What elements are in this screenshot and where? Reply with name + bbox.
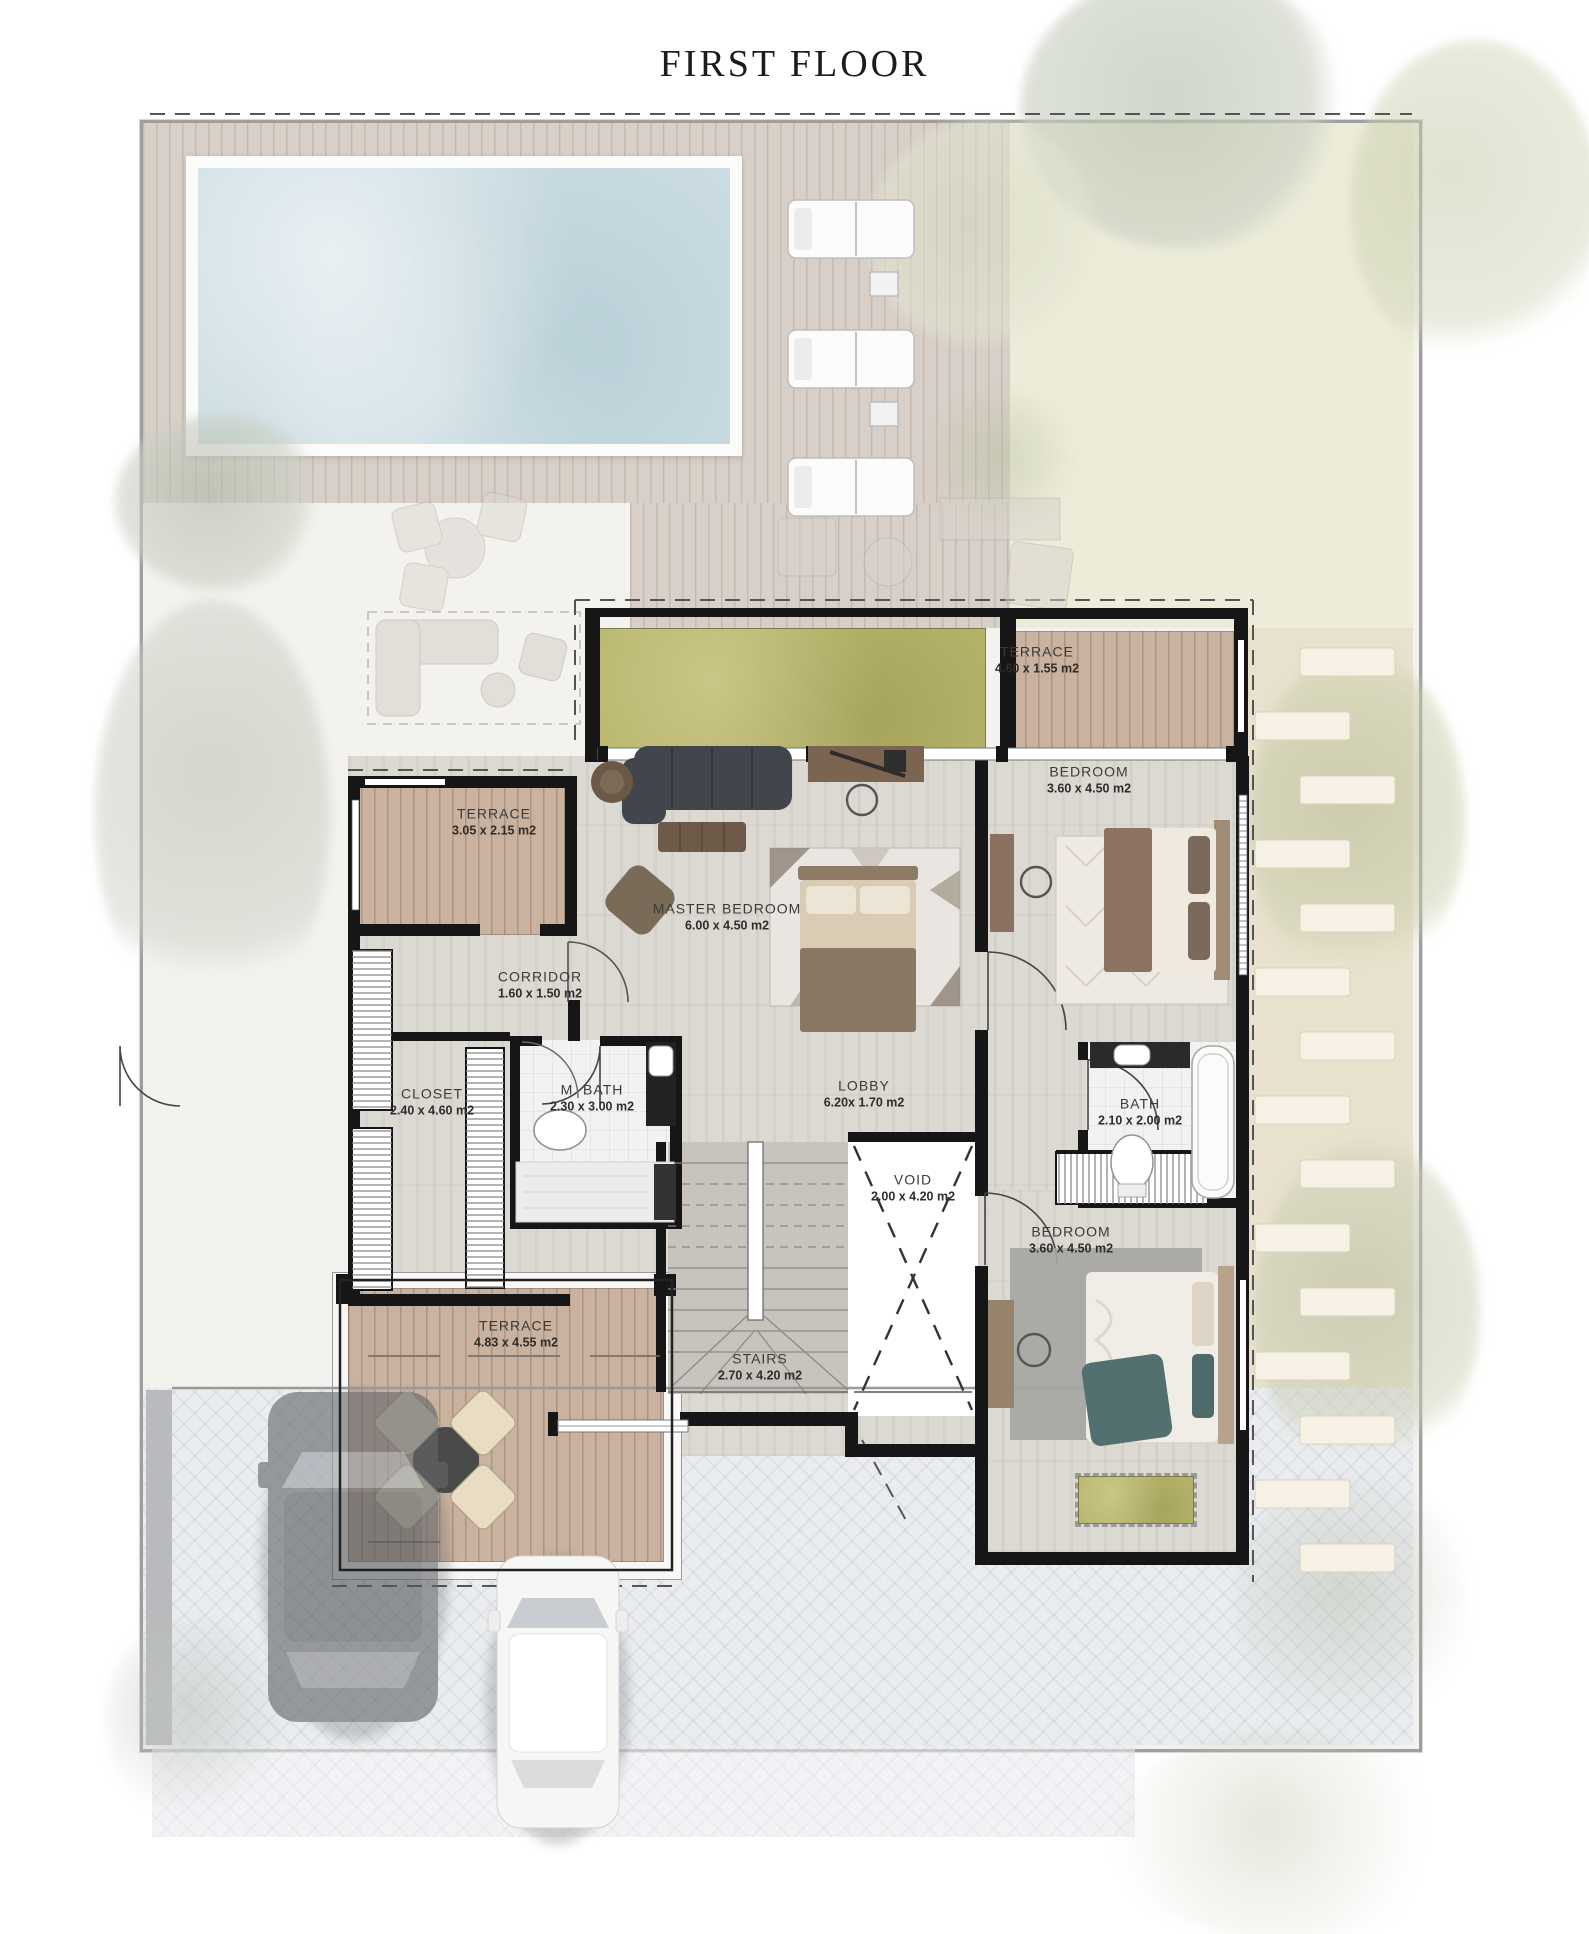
deck-extension (630, 503, 1010, 628)
grass-patch-bottom (1078, 1476, 1194, 1524)
room-label-corridor: CORRIDOR 1.60 x 1.50 m2 (498, 968, 582, 1001)
tree-left-upper (115, 415, 325, 590)
tree-bottom-left (105, 1615, 285, 1825)
room-label-terrace-top: TERRACE 4.60 x 1.55 m2 (995, 643, 1079, 676)
room-label-master-bedroom: MASTER BEDROOM 6.00 x 4.50 m2 (653, 900, 802, 933)
room-label-terrace-bottom: TERRACE 4.83 x 4.55 m2 (474, 1317, 558, 1350)
tree-top-right (1350, 40, 1589, 370)
page-title: FIRST FLOOR (0, 42, 1589, 86)
room-label-closet: CLOSET 2.40 x 4.60 m2 (390, 1085, 474, 1118)
room-label-lobby: LOBBY 6.20x 1.70 m2 (824, 1077, 905, 1110)
tree-right-bottom (1235, 1470, 1470, 1740)
driveway-apron (152, 1745, 1135, 1837)
terrace-left-deck (348, 778, 565, 935)
master-bath-tile (514, 1040, 680, 1226)
grass-patch-top (598, 628, 986, 756)
room-label-void: VOID 2.00 x 4.20 m2 (871, 1171, 955, 1204)
tree-right-mid (1250, 650, 1465, 990)
floor-plan-canvas: FIRST FLOOR (0, 0, 1589, 1934)
room-label-m-bath: M. BATH 2.30 x 3.00 m2 (550, 1081, 634, 1114)
room-label-stairs: STAIRS 2.70 x 4.20 m2 (718, 1350, 802, 1383)
room-label-bedroom-top: BEDROOM 3.60 x 4.50 m2 (1047, 763, 1131, 796)
swimming-pool (198, 168, 730, 444)
tree-left-cluster (95, 600, 330, 1030)
room-label-bath: BATH 2.10 x 2.00 m2 (1098, 1095, 1182, 1128)
tree-right-lower (1255, 1140, 1480, 1480)
tree-bottom-right (1110, 1730, 1460, 1934)
tree-garden-small (930, 390, 1080, 540)
room-label-terrace-left: TERRACE 3.05 x 2.15 m2 (452, 805, 536, 838)
tree-garden (870, 120, 1100, 350)
room-label-bedroom-bottom: BEDROOM 3.60 x 4.50 m2 (1029, 1223, 1113, 1256)
